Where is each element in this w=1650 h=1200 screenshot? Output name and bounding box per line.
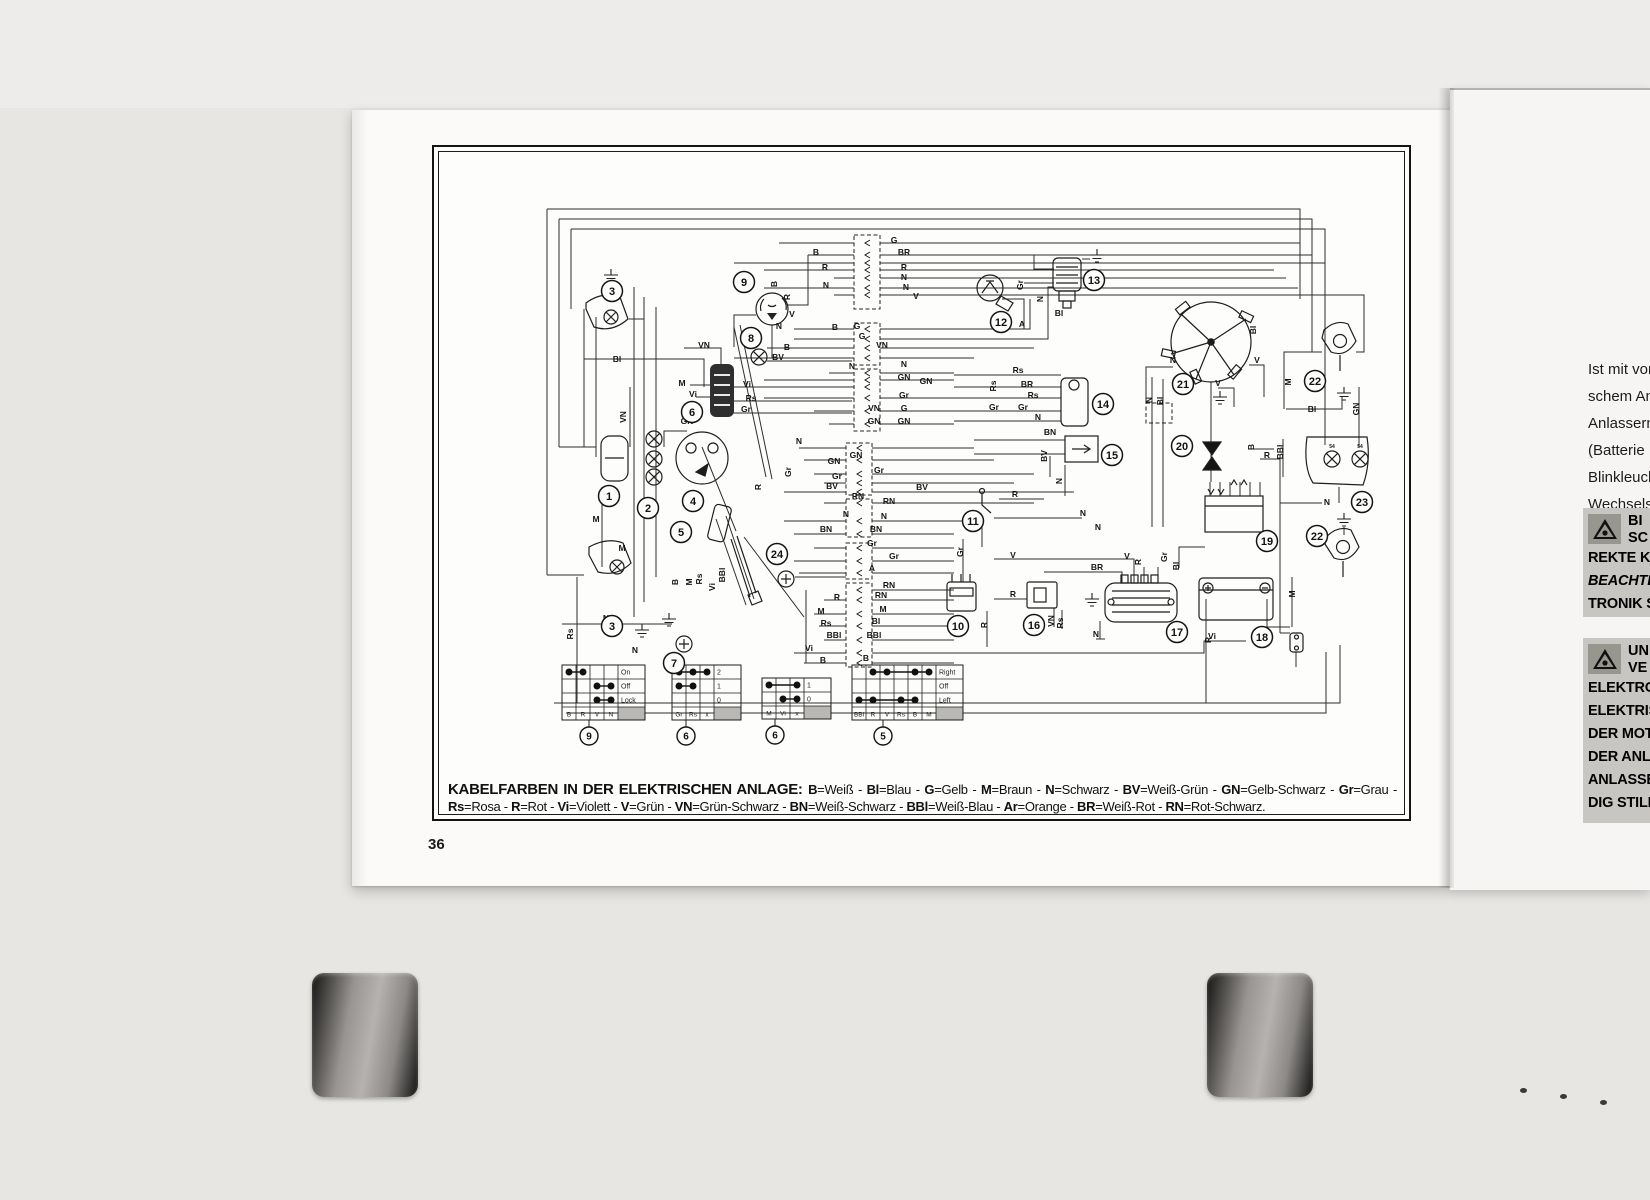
svg-text:21: 21 [1177,379,1189,391]
warning-line: DER ANLA [1588,746,1650,769]
legend-tables: OnOffLockBRVN9210GrRsx610MVix6RightOffLe… [562,665,963,745]
svg-text:13: 13 [1088,275,1100,287]
wire-label: 54 [1357,444,1363,450]
wire-label: BN [1044,427,1056,437]
ignition-coil-symbol [1053,258,1081,308]
wire-label: N [881,511,887,521]
warning-line: TRONIK SE [1588,593,1650,616]
component-marker: 24 [767,544,788,565]
wiring-diagram: OnOffLockBRVN9210GrRsx610MVix6RightOffLe… [434,147,1409,819]
wire-label: R [834,592,840,602]
battery-symbol [1199,578,1273,620]
wire-label: GN [828,456,841,466]
wire-label: Bl [1155,397,1165,406]
component-marker: 13 [1084,270,1105,291]
component-marker: 18 [1252,627,1273,648]
svg-text:1: 1 [606,491,612,503]
wire-label: Rs [1055,617,1065,628]
component-marker: 23 [1352,492,1373,513]
wire-label: BBl [867,630,882,640]
legend-table: 210GrRsx6 [672,665,741,745]
wire-label: N [843,509,849,519]
voltage-regulator-symbol [1105,575,1177,622]
svg-text:17: 17 [1171,627,1183,639]
bulb-symbols [604,310,1368,574]
component-marker: 20 [1172,436,1193,457]
wire-label: B [820,655,826,665]
warning-line: ELEKTRON [1588,677,1650,700]
component-marker: 15 [1102,445,1123,466]
wire-label: M [879,604,886,614]
component-marker: 1 [599,486,620,507]
legend-col-label: Vi [780,711,786,718]
warning-box-1: BISCREKTE KBEACHTETRONIK SE [1583,508,1650,617]
warning-side-text: BISC [1628,513,1650,547]
wire-label: Bl [872,616,881,626]
svg-text:7: 7 [671,658,677,670]
wire-label: Rs [821,618,832,628]
wire-label: BN [820,524,832,534]
scan-speck [1560,1094,1567,1099]
wire-label: Gr [989,402,1000,412]
wire-label: B [813,247,819,257]
legend-row-label: Off [939,684,948,691]
binder-tab-left [312,973,418,1097]
legend-col-label: R [581,712,586,719]
legend-col-label: V [885,712,890,719]
wire-label: RN [852,491,864,501]
wire-label: Vi [743,379,751,389]
page-number: 36 [428,836,445,853]
wire-label: Rs [746,393,757,403]
legend-col-label: Rs [689,712,698,719]
legend-col-label: Rs [897,712,906,719]
wire-label: N [796,436,802,446]
wire-label: N [632,645,638,655]
wire-label: G [891,235,898,245]
paragraph-line: (Batterie [1588,437,1650,464]
wire-label: Vi [707,583,717,591]
svg-text:23: 23 [1356,497,1368,509]
svg-text:22: 22 [1309,376,1321,388]
wire-label: N [823,280,829,290]
wire-label: M [1283,378,1293,385]
wire-label: GN [868,416,881,426]
wire-label: B [670,579,680,585]
wire-label: N [1093,629,1099,639]
wire-label: BR [1091,562,1103,572]
wire-label: N [1324,497,1330,507]
svg-text:18: 18 [1256,632,1268,644]
control-box-symbol [1065,436,1098,462]
svg-text:5: 5 [880,731,886,742]
wire-label: Bl [1248,326,1258,335]
svg-text:12: 12 [995,317,1007,329]
wire-label: R [1264,450,1270,460]
component-marker: 9 [734,272,755,293]
svg-text:6: 6 [689,407,695,419]
wire-label: Vi [805,643,813,653]
svg-text:16: 16 [1028,620,1040,632]
component-marker: 5 [671,522,692,543]
legend-row-label: 0 [717,698,721,705]
relay-symbol [1027,582,1057,608]
wire-label: RN [883,580,895,590]
cdi-unit-symbol [947,574,976,611]
legend-row-label: On [621,670,630,677]
svg-text:11: 11 [967,516,979,528]
legend-row-label: 1 [807,683,811,690]
wire-label: R [1012,489,1018,499]
wire-label: Gr [1015,279,1025,290]
component-marker: 11 [963,511,984,532]
wire-label: V [1215,378,1221,388]
component-marker: 8 [741,328,762,349]
wire-label: Vi [1208,631,1216,641]
wire-label: M [592,514,599,524]
wire-label: B [832,322,838,332]
wire-label: Gr [741,404,752,414]
legend-row-label: Left [939,698,951,705]
tail-lamp-symbol [601,436,628,481]
legend-col-label: BBl [854,712,865,719]
wire-color-labels: BlVNMRsNMNVNMViViRsGrGNBRsViBBlMRGrBRGBB… [565,235,1363,665]
wire-label: N [1170,355,1176,365]
svg-text:3: 3 [609,621,615,633]
component-marker: 14 [1093,394,1114,415]
wire-label: V [1254,355,1260,365]
fuse-symbol [1290,633,1303,652]
wiring-diagram-frame: OnOffLockBRVN9210GrRsx610MVix6RightOffLe… [432,145,1411,821]
wire-label: Rs [988,380,998,391]
component-marker: 12 [991,312,1012,333]
legend-col-label: B [913,712,917,719]
components [586,258,1368,652]
connector-blocks [846,235,1172,667]
wire-label: Bl [1308,404,1317,414]
svg-text:9: 9 [741,277,747,289]
svg-text:2: 2 [645,503,651,515]
legend-table: RightOffLeftBBlRVRsBM5 [852,665,963,745]
wire-label: Rs [565,628,575,639]
component-marker: 22 [1307,526,1328,547]
wire-label: GN [920,376,933,386]
wire-label: Gr [832,471,843,481]
wire-label: N [901,359,907,369]
facing-page-paragraph: Ist mit vorschem AnlAnlasserm(BatterieBl… [1588,356,1650,518]
component-marker: 3 [602,281,623,302]
wire-label: Gr [874,465,885,475]
wire-label: 54 [1329,444,1335,450]
wire-label: BV [826,481,838,491]
wire-label: BV [1039,450,1049,462]
scan-speck [1520,1088,1527,1093]
svg-text:8: 8 [748,333,754,345]
wire-label: R [979,622,989,628]
wire-label: R [901,262,907,272]
scan-speck [1600,1100,1607,1105]
wire-label: Rs [694,573,704,584]
wire-label: BBl [827,630,842,640]
wire-label: Gr [783,466,793,477]
wire-label: V [1010,550,1016,560]
wire-label: B [784,342,790,352]
wire-label: N [903,282,909,292]
connector-6-symbol [710,364,734,417]
legend-col-label: x [795,711,799,718]
wire-harness [547,209,1364,713]
front-turn-signal-symbol [1322,322,1356,371]
wire-label: Gr [899,390,910,400]
component-marker: 16 [1024,615,1045,636]
wire-label: R [753,484,763,490]
rectifier-symbol [1205,480,1263,532]
legend-table: OnOffLockBRVN9 [562,665,645,745]
wire-label: R [1010,589,1016,599]
legend-row-label: 1 [717,684,721,691]
component-marker: 3 [602,616,623,637]
legend-col-label: N [609,712,614,719]
legend-row-label: Lock [621,698,636,705]
paragraph-line: Blinkleuch [1588,464,1650,491]
warning-line: BEACHTE [1588,570,1650,593]
warning-triangle-icon [1588,514,1621,544]
legend-row-label: 2 [717,670,721,677]
legend-col-label: V [595,712,600,719]
wire-label: M [678,378,685,388]
flasher-unit-symbol [1061,378,1088,426]
warning-line: DIG STILLS [1588,792,1650,815]
wire-label: BBl [717,568,727,583]
component-marker: 10 [948,616,969,637]
wire-label: RN [875,590,887,600]
paragraph-line: Ist mit vor [1588,356,1650,383]
warning-line: ELEKTRISC [1588,700,1650,723]
wire-label: BR [1021,379,1033,389]
component-marker: 21 [1173,374,1194,395]
wire-label: G [859,331,866,341]
svg-text:10: 10 [952,621,964,633]
speedometer-symbol [676,432,728,484]
wire-label: GN [850,450,863,460]
wire-label: M [1287,590,1297,597]
wire-label: B [863,653,869,663]
component-marker: 4 [683,491,704,512]
legend-table: 10MVix6 [762,678,831,744]
wire-label: Bl [1055,308,1064,318]
headlight-bulb-symbol [977,275,1013,311]
warning-line: DER MOTO [1588,723,1650,746]
svg-text:3: 3 [609,286,615,298]
wire-label: BR [898,247,910,257]
svg-text:20: 20 [1176,441,1188,453]
wire-label: A [869,563,875,573]
component-marker: 19 [1257,531,1278,552]
svg-text:24: 24 [771,549,784,561]
svg-text:4: 4 [690,496,697,508]
wire-label: V [789,309,795,319]
wire-label: N [901,272,907,282]
wire-label: Vi [689,389,697,399]
legend-col-label: R [871,712,876,719]
caption: KABELFARBEN IN DER ELEKTRISCHEN ANLAGE: … [448,781,1397,815]
wire-label: VN [876,340,888,350]
wire-label: Gr [955,546,965,557]
warning-triangle-icon [1588,644,1621,674]
wire-label: N [776,321,782,331]
wire-label: N [1144,397,1154,403]
wire-label: BV [772,352,784,362]
legend-col-label: M [766,711,771,718]
wire-label: R [782,294,792,300]
wire-label: Rs [1013,365,1024,375]
legend-row-label: 0 [807,697,811,704]
warning-side-text: UNVE [1628,643,1650,677]
wire-label: N [1035,296,1045,302]
scan-background-top [0,0,1650,108]
wire-label: N [849,361,855,371]
wire-label: M [684,578,694,585]
wire-label: Gr [1159,551,1169,562]
svg-text:15: 15 [1106,450,1118,462]
wire-label: Bl [1171,562,1181,571]
svg-text:14: 14 [1097,399,1110,411]
page-gutter-shadow [1438,88,1454,888]
warning-line: REKTE K [1588,547,1650,570]
svg-text:22: 22 [1311,531,1323,543]
wire-label: R [1133,559,1143,565]
svg-text:6: 6 [683,731,689,742]
wire-label: V [913,291,919,301]
flywheel-magneto-symbol [1161,301,1253,384]
caption-heading: KABELFARBEN IN DER ELEKTRISCHEN ANLAGE: [448,781,803,798]
wire-label: GN [1351,403,1361,416]
wire-label: Rs [1028,390,1039,400]
component-marker: 22 [1305,371,1326,392]
wire-label: N [1095,522,1101,532]
wire-label: N [1080,508,1086,518]
wire-label: G [854,321,861,331]
component-marker: 2 [638,498,659,519]
wire-label: GN [898,416,911,426]
wire-label: Bl [613,354,622,364]
wire-label: Gr [867,538,878,548]
wire-label: B [769,281,779,287]
wire-label: Gr [889,551,900,561]
wire-label: BN [870,524,882,534]
wire-label: VN [868,403,880,413]
wire-label: V [1124,551,1130,561]
wire-label: VN [698,340,710,350]
wire-label: N [1035,412,1041,422]
svg-text:9: 9 [586,731,592,742]
scanned-manual-page: { "document": { "page_number": "36" }, "… [0,0,1650,1200]
wire-label: Gr [1018,402,1029,412]
diode-symbol [1203,442,1221,470]
wire-label: VN [618,411,628,423]
binder-tab-right [1207,973,1313,1097]
paragraph-line: Anlasserm [1588,410,1650,437]
wire-label: M [618,543,625,553]
svg-text:6: 6 [772,730,778,741]
wire-label: BV [916,482,928,492]
legend-col-label: M [926,712,931,719]
wire-label: G [901,403,908,413]
legend-row-label: Right [939,670,955,677]
warning-line: ANLASSERM [1588,769,1650,792]
component-marker: 7 [664,653,685,674]
paragraph-line: schem Anl [1588,383,1650,410]
component-marker: 17 [1167,622,1188,643]
component-marker: 6 [682,402,703,423]
svg-text:5: 5 [678,527,684,539]
wire-label: GN [898,372,911,382]
wire-label: B [1246,444,1256,450]
wire-label: N [1054,478,1064,484]
warning-box-2: UNVEELEKTRONELEKTRISCDER MOTODER ANLAANL… [1583,638,1650,823]
legend-col-label: Gr [675,712,683,719]
wire-label: M [817,606,824,616]
wire-label: RN [883,496,895,506]
legend-col-label: B [567,712,571,719]
wire-label: A [1019,319,1025,329]
legend-row-label: Off [621,684,630,691]
svg-text:19: 19 [1261,536,1273,548]
rear-turn-signal-symbol [1325,528,1359,577]
wire-label: R [822,262,828,272]
wire-label: BBl [1275,445,1285,460]
